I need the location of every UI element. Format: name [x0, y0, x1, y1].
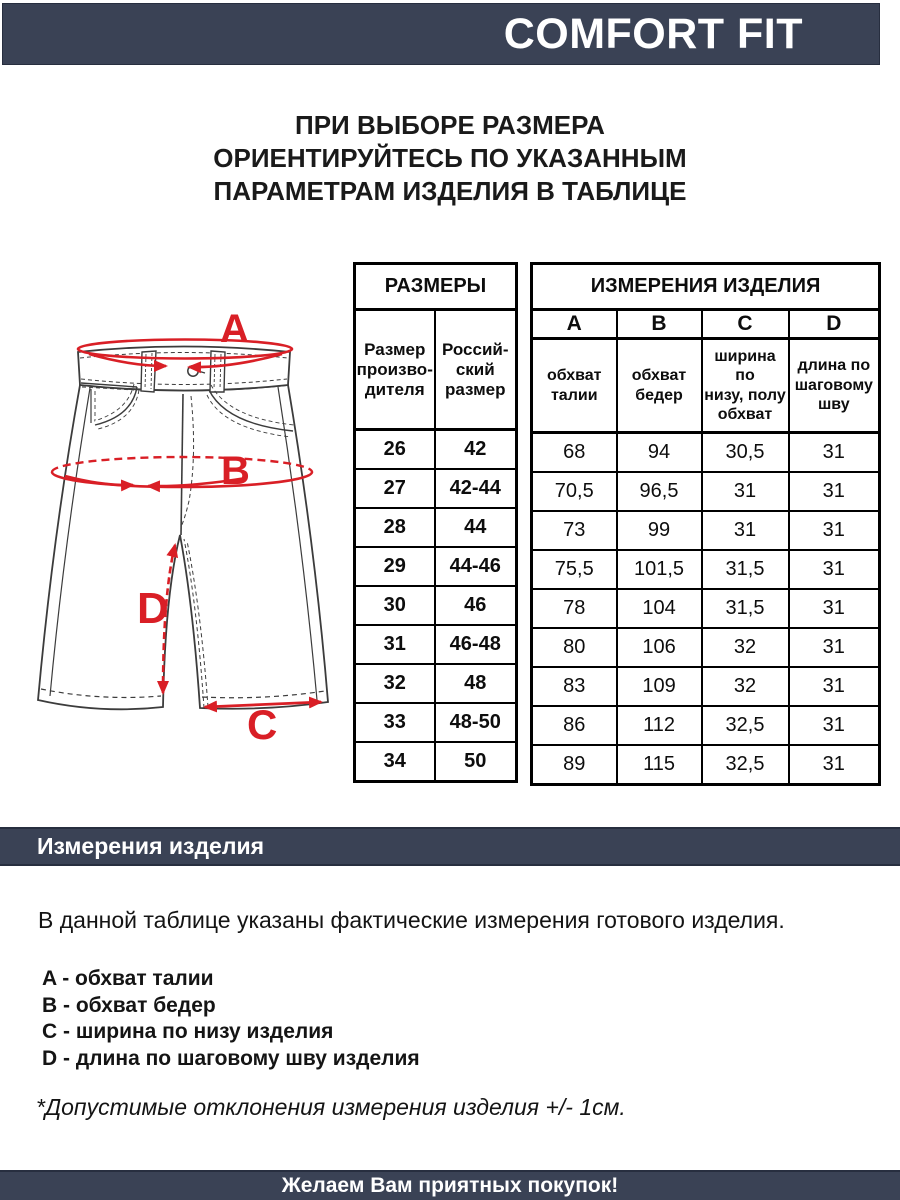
table-cell: 42-44 [435, 469, 517, 508]
tolerance-note: *Допустимые отклонения измерения изделия… [36, 1094, 626, 1121]
size-tables: РАЗМЕРЫ Размер произво- дителя Россий- с… [353, 262, 881, 786]
table-row: обхват талии обхват бедер ширина по низу… [532, 339, 880, 433]
measure-label-a: A [220, 307, 249, 351]
legend-item: B - обхват бедер [42, 993, 420, 1020]
table-cell: 32 [355, 664, 435, 703]
column-header: обхват бедер [617, 339, 702, 433]
table-cell: 48-50 [435, 703, 517, 742]
table-cell: 101,5 [617, 550, 702, 589]
table-cell: 31 [789, 628, 880, 667]
column-header: обхват талии [532, 339, 617, 433]
table-row: 8911532,531 [532, 745, 880, 785]
shorts-technical-drawing: A B D C [15, 295, 345, 750]
table-row: 3348-50 [355, 703, 517, 742]
table-cell: 86 [532, 706, 617, 745]
table-cell: 31 [789, 511, 880, 550]
table-cell: 31 [702, 511, 789, 550]
table-cell: 42 [435, 430, 517, 470]
table-row: 3450 [355, 742, 517, 782]
table-cell: 44-46 [435, 547, 517, 586]
sizes-table-title: РАЗМЕРЫ [355, 264, 517, 310]
table-row: 2642 [355, 430, 517, 470]
table-cell: 68 [532, 433, 617, 473]
top-brand-bar: COMFORT FIT [2, 3, 880, 65]
table-cell: 99 [617, 511, 702, 550]
intro-headline: ПРИ ВЫБОРЕ РАЗМЕРА ОРИЕНТИРУЙТЕСЬ ПО УКА… [0, 109, 900, 208]
table-cell: 83 [532, 667, 617, 706]
column-header: ширина по низу, полу обхват [702, 339, 789, 433]
table-cell: 96,5 [617, 472, 702, 511]
column-header: Россий- ский размер [435, 310, 517, 430]
table-row: РАЗМЕРЫ [355, 264, 517, 310]
column-header: длина по шаговому шву [789, 339, 880, 433]
table-cell: 32 [702, 628, 789, 667]
section-bar-title: Измерения изделия [37, 833, 264, 860]
table-explanation-text: В данной таблице указаны фактические изм… [38, 907, 785, 934]
legend-item: D - длина по шаговому шву изделия [42, 1046, 420, 1073]
table-cell: 109 [617, 667, 702, 706]
table-cell: 78 [532, 589, 617, 628]
letter-header: D [789, 310, 880, 339]
table-row: 7810431,531 [532, 589, 880, 628]
table-cell: 112 [617, 706, 702, 745]
table-cell: 89 [532, 745, 617, 785]
table-row: 3046 [355, 586, 517, 625]
size-chart-page: COMFORT FIT ПРИ ВЫБОРЕ РАЗМЕРА ОРИЕНТИРУ… [0, 0, 900, 1200]
table-cell: 46 [435, 586, 517, 625]
table-row: 70,596,53131 [532, 472, 880, 511]
table-cell: 31 [789, 745, 880, 785]
table-cell: 31 [355, 625, 435, 664]
table-cell: 31 [789, 433, 880, 473]
table-row: 2944-46 [355, 547, 517, 586]
table-cell: 31 [789, 550, 880, 589]
sizes-table: РАЗМЕРЫ Размер произво- дителя Россий- с… [353, 262, 518, 783]
letter-header: B [617, 310, 702, 339]
table-row: 689430,531 [532, 433, 880, 473]
table-cell: 31 [789, 589, 880, 628]
table-cell: 46-48 [435, 625, 517, 664]
measure-label-b: B [221, 449, 250, 493]
table-row: 2844 [355, 508, 517, 547]
table-cell: 115 [617, 745, 702, 785]
table-cell: 106 [617, 628, 702, 667]
table-row: 3146-48 [355, 625, 517, 664]
table-cell: 30 [355, 586, 435, 625]
table-row: ИЗМЕРЕНИЯ ИЗДЕЛИЯ [532, 264, 880, 310]
table-cell: 28 [355, 508, 435, 547]
measurement-legend: A - обхват талии B - обхват бедер C - ши… [42, 966, 420, 1072]
footer-message: Желаем Вам приятных покупок! [282, 1174, 618, 1198]
table-cell: 31,5 [702, 589, 789, 628]
table-cell: 44 [435, 508, 517, 547]
table-cell: 32,5 [702, 745, 789, 785]
letter-header: C [702, 310, 789, 339]
shorts-measurement-figure: A B D C [15, 295, 345, 750]
table-cell: 27 [355, 469, 435, 508]
table-cell: 31 [702, 472, 789, 511]
table-cell: 31 [789, 667, 880, 706]
brand-title: COMFORT FIT [504, 10, 803, 59]
letter-header: A [532, 310, 617, 339]
measure-label-d: D [137, 584, 169, 633]
table-row: 801063231 [532, 628, 880, 667]
table-cell: 94 [617, 433, 702, 473]
table-cell: 70,5 [532, 472, 617, 511]
column-header: Размер произво- дителя [355, 310, 435, 430]
table-cell: 50 [435, 742, 517, 782]
table-row: A B C D [532, 310, 880, 339]
table-row: 831093231 [532, 667, 880, 706]
table-row: 8611232,531 [532, 706, 880, 745]
table-cell: 75,5 [532, 550, 617, 589]
table-cell: 73 [532, 511, 617, 550]
table-cell: 29 [355, 547, 435, 586]
table-cell: 48 [435, 664, 517, 703]
table-cell: 31 [789, 472, 880, 511]
table-cell: 32,5 [702, 706, 789, 745]
legend-item: C - ширина по низу изделия [42, 1019, 420, 1046]
measurements-table: ИЗМЕРЕНИЯ ИЗДЕЛИЯ A B C D обхват талии о… [530, 262, 881, 786]
footer-bar: Желаем Вам приятных покупок! [0, 1170, 900, 1200]
table-cell: 32 [702, 667, 789, 706]
table-row: 75,5101,531,531 [532, 550, 880, 589]
table-cell: 104 [617, 589, 702, 628]
table-row: Размер произво- дителя Россий- ский разм… [355, 310, 517, 430]
table-cell: 33 [355, 703, 435, 742]
table-row: 73993131 [532, 511, 880, 550]
table-cell: 34 [355, 742, 435, 782]
measure-label-c: C [247, 701, 277, 748]
legend-item: A - обхват талии [42, 966, 420, 993]
table-cell: 31,5 [702, 550, 789, 589]
table-row: 2742-44 [355, 469, 517, 508]
table-cell: 80 [532, 628, 617, 667]
table-cell: 31 [789, 706, 880, 745]
waistband [78, 347, 290, 391]
measurements-table-title: ИЗМЕРЕНИЯ ИЗДЕЛИЯ [532, 264, 880, 310]
table-cell: 26 [355, 430, 435, 470]
table-row: 3248 [355, 664, 517, 703]
section-bar: Измерения изделия [0, 827, 900, 866]
table-cell: 30,5 [702, 433, 789, 473]
